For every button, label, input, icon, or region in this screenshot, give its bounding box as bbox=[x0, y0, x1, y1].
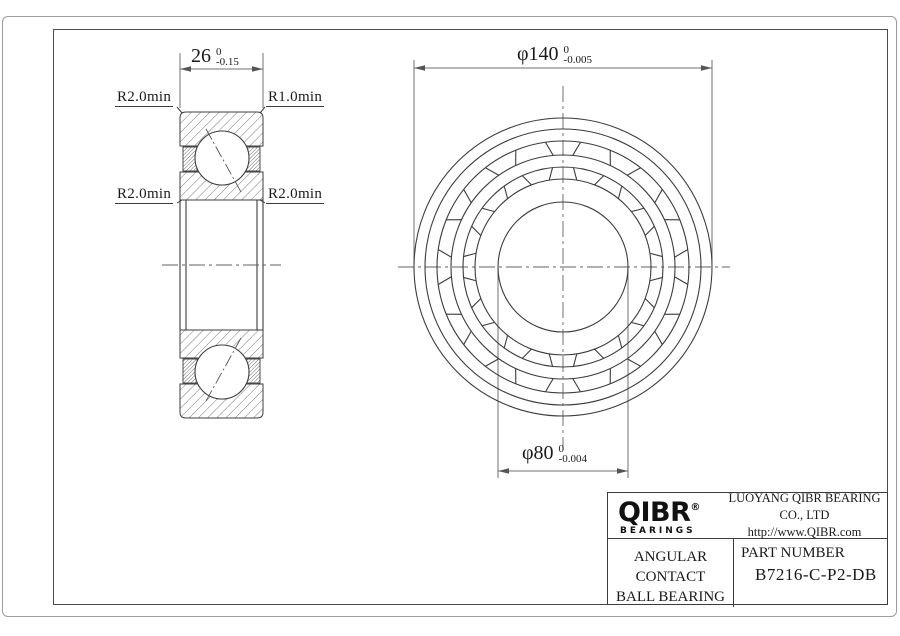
engineering-drawing-page: { "drawing": { "section_view": { "width_… bbox=[0, 0, 900, 636]
product-type-line2: BALL BEARING bbox=[608, 587, 733, 607]
section-view bbox=[162, 53, 281, 418]
fillet-label-mid-left: R2.0min bbox=[115, 186, 173, 204]
title-block: QIBR® BEARINGS LUOYANG QIBR BEARING CO.,… bbox=[607, 492, 888, 605]
bore-dim-value: φ80 bbox=[522, 443, 554, 463]
width-dim-tolerance: 0 -0.15 bbox=[216, 46, 239, 67]
logo-subtitle: BEARINGS bbox=[620, 526, 726, 536]
width-dimension: 26 0 -0.15 bbox=[191, 46, 239, 67]
front-view bbox=[398, 60, 730, 478]
od-dimension: φ140 0 -0.005 bbox=[517, 44, 592, 65]
company-name: LUOYANG QIBR BEARING CO., LTD bbox=[726, 490, 883, 524]
part-number-label: PART NUMBER bbox=[741, 545, 887, 562]
part-number-cell: PART NUMBER B7216-C-P2-DB bbox=[734, 539, 887, 607]
fillet-label-top-left: R2.0min bbox=[115, 89, 173, 107]
product-type-line1: ANGULAR CONTACT bbox=[608, 547, 733, 587]
bore-dim-tolerance: 0 -0.004 bbox=[559, 443, 587, 464]
company-info: LUOYANG QIBR BEARING CO., LTD http://www… bbox=[726, 490, 887, 541]
od-dim-tolerance: 0 -0.005 bbox=[564, 44, 592, 65]
bore-dimension: φ80 0 -0.004 bbox=[522, 443, 587, 464]
fillet-label-top-right: R1.0min bbox=[266, 89, 324, 107]
width-dim-value: 26 bbox=[191, 46, 211, 66]
registered-mark-icon: ® bbox=[690, 502, 700, 513]
od-dim-value: φ140 bbox=[517, 44, 559, 64]
product-type-cell: ANGULAR CONTACT BALL BEARING bbox=[608, 539, 734, 607]
title-block-detail-row: ANGULAR CONTACT BALL BEARING PART NUMBER… bbox=[608, 539, 887, 607]
fillet-label-mid-right: R2.0min bbox=[266, 186, 324, 204]
title-block-header-row: QIBR® BEARINGS LUOYANG QIBR BEARING CO.,… bbox=[608, 493, 887, 539]
logo-wordmark: QIBR® bbox=[618, 496, 726, 525]
part-number-value: B7216-C-P2-DB bbox=[755, 566, 887, 583]
company-logo: QIBR® BEARINGS bbox=[608, 496, 726, 536]
